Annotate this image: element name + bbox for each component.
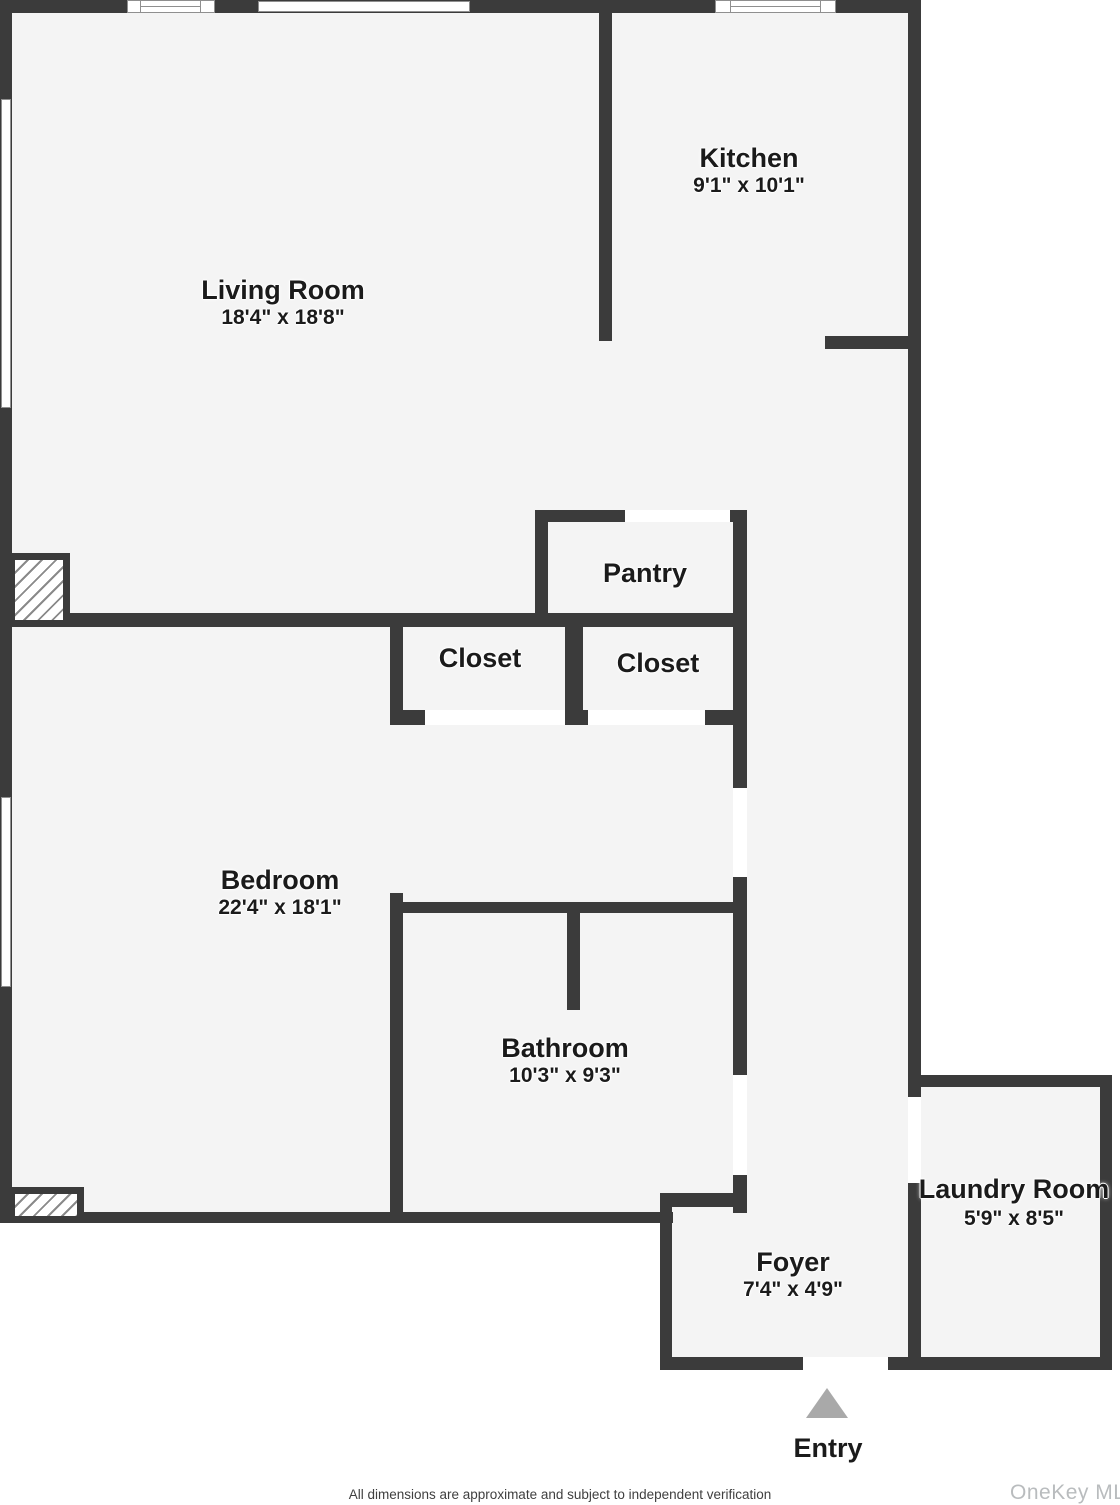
room-dims: 22'4" x 18'1" bbox=[218, 895, 341, 921]
room-label-foyer: Foyer 7'4" x 4'9" bbox=[743, 1247, 843, 1303]
window bbox=[258, 1, 470, 12]
closet-door-opening bbox=[588, 710, 705, 725]
laundry-door-opening bbox=[908, 1097, 921, 1183]
entry-door-opening bbox=[803, 1357, 888, 1370]
room-name: Bathroom bbox=[501, 1033, 629, 1063]
room-dims: 5'9" x 8'5" bbox=[914, 1206, 1114, 1232]
room-name: Closet bbox=[439, 643, 522, 673]
chimney-hatch bbox=[8, 1187, 84, 1223]
room-name: Living Room bbox=[201, 275, 365, 305]
window bbox=[1, 797, 11, 987]
wall bbox=[535, 510, 548, 613]
wall bbox=[908, 1075, 1112, 1087]
wall bbox=[660, 1193, 672, 1370]
floor-plan-page: { "plan_type": "apartment-floor-plan", "… bbox=[0, 0, 1120, 1504]
room-label-living-room: Living Room 18'4" x 18'8" bbox=[201, 275, 365, 331]
window bbox=[1, 99, 11, 408]
chimney-hatch bbox=[8, 553, 70, 627]
wall bbox=[825, 336, 908, 349]
watermark: OneKey MLS bbox=[1010, 1481, 1120, 1505]
room-label-closet-right: Closet bbox=[617, 648, 700, 678]
room-name: Laundry Room bbox=[914, 1172, 1114, 1206]
room-name: Kitchen bbox=[693, 143, 805, 173]
room-label-kitchen: Kitchen 9'1" x 10'1" bbox=[693, 143, 805, 199]
closet-door-opening bbox=[425, 710, 565, 725]
wall bbox=[567, 913, 580, 1010]
entry-label: Entry bbox=[793, 1433, 862, 1464]
wall bbox=[390, 893, 403, 1223]
pantry-door-opening bbox=[625, 510, 730, 522]
room-name: Pantry bbox=[603, 558, 687, 588]
room-dims: 10'3" x 9'3" bbox=[501, 1063, 629, 1089]
bedroom-door-opening bbox=[733, 788, 747, 877]
room-label-closet-left: Closet bbox=[439, 643, 522, 673]
room-dims: 7'4" x 4'9" bbox=[743, 1277, 843, 1303]
wall bbox=[390, 902, 747, 913]
wall bbox=[599, 13, 612, 341]
room-name: Bedroom bbox=[218, 865, 341, 895]
window bbox=[127, 0, 215, 13]
room-name: Closet bbox=[617, 648, 700, 678]
room-label-bathroom: Bathroom 10'3" x 9'3" bbox=[501, 1033, 629, 1089]
window bbox=[715, 0, 836, 13]
room-name: Foyer bbox=[743, 1247, 843, 1277]
room-dims: 9'1" x 10'1" bbox=[693, 173, 805, 199]
room-label-bedroom: Bedroom 22'4" x 18'1" bbox=[218, 865, 341, 921]
room-dims: 18'4" x 18'8" bbox=[201, 305, 365, 331]
wall bbox=[660, 1193, 747, 1207]
wall bbox=[0, 1212, 673, 1223]
bathroom-door-opening bbox=[733, 1075, 747, 1175]
room-label-laundry-room: Laundry Room 5'9" x 8'5" bbox=[914, 1172, 1114, 1232]
wall bbox=[0, 613, 747, 627]
entry-arrow-icon bbox=[806, 1388, 848, 1418]
disclaimer-text: All dimensions are approximate and subje… bbox=[0, 1487, 1120, 1502]
room-label-pantry: Pantry bbox=[603, 558, 687, 588]
